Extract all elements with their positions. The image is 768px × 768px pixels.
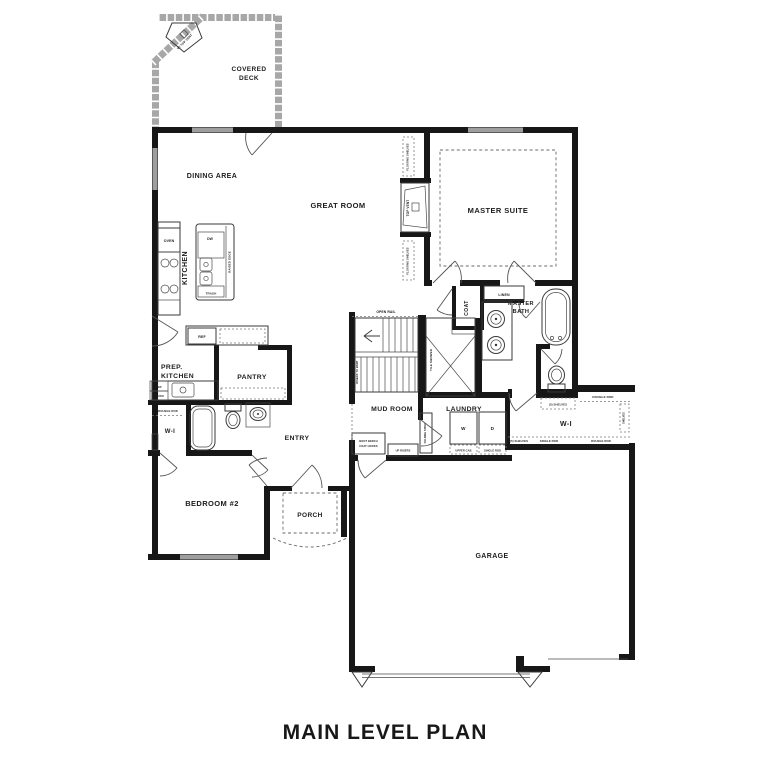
prep-kitchen-label-2: KITCHEN	[161, 373, 194, 380]
upper-cab-label: UPPER CAB	[455, 449, 471, 453]
front-door	[291, 465, 322, 488]
entry-label: ENTRY	[285, 435, 310, 442]
covered-deck-label-2: DECK	[239, 75, 259, 82]
bedroom2-closet-door	[160, 453, 177, 476]
tile-shower-label: TILE SHOWER	[429, 348, 433, 371]
prep-ref-label: REF	[156, 385, 162, 389]
garage-label: GARAGE	[475, 553, 508, 560]
kitchen-ref-label: REF	[198, 335, 206, 339]
micro-label: MICRO	[154, 394, 165, 398]
floor-plan-drawing: W/ TOP VENT COVERED DECK	[0, 0, 768, 768]
floating-shelves-upper-label: FLOATING SHELVES	[406, 143, 410, 170]
stair-direction-arrow	[364, 330, 380, 342]
doors	[152, 133, 352, 488]
wi-double-rod-top-label: DOUBLE ROD	[592, 395, 614, 399]
covered-deck-label-1: COVERED	[232, 66, 267, 73]
water-closet	[541, 349, 565, 392]
bedroom2-door	[249, 458, 267, 486]
master-suite-features	[433, 150, 556, 283]
freestanding-tub	[542, 289, 570, 345]
folding-table-label: FOLDING TABLE	[424, 422, 427, 443]
up-risers-label: UP RISERS	[396, 449, 411, 453]
great-room-label: GREAT ROOM	[310, 201, 365, 210]
top-vent-label: TOP VENT	[406, 200, 410, 217]
dining-area-label: DINING AREA	[187, 173, 237, 180]
wi-five-shelves-label: (5) SHELVES	[510, 439, 528, 443]
master-door-left	[433, 261, 461, 283]
bed-wi-double-rod-label: DOUBLE ROD	[158, 409, 178, 413]
floor-plan-page: W/ TOP VENT COVERED DECK	[0, 0, 768, 768]
tile-shower: SHELF TILE SHOWER	[426, 318, 475, 396]
master-bath-fixtures: SHELF TILE SHOWER	[426, 289, 570, 396]
dishwasher-label: DW	[207, 237, 214, 241]
washer-label: W	[461, 426, 466, 431]
covered-deck: W/ TOP VENT COVERED DECK	[153, 14, 282, 127]
open-rail-label: OPEN RAIL	[376, 310, 395, 314]
kitchen-fixtures: OVEN RAISED EDGE DW TRASH REF	[158, 222, 268, 345]
wi-double-rod-bottom-label: DOUBLE ROD	[591, 439, 611, 443]
bedroom2-closet-label: W-I	[165, 429, 175, 435]
mud-room-fixtures: BOOT BENCH COAT HOOKS UP RISERS	[352, 433, 418, 478]
dryer-label: D	[491, 426, 495, 431]
oven-label: OVEN	[164, 239, 175, 243]
pantry-shelves	[221, 388, 285, 399]
kitchen-label: KITCHEN	[182, 251, 189, 285]
boot-bench-label-2: COAT HOOKS	[359, 444, 378, 448]
mud-room-label: MUD ROOM	[371, 406, 413, 413]
master-closet-features: DOUBLE ROD (5) SHELVES SHELVES (5) SHELV…	[508, 393, 630, 443]
master-suite-label: MASTER SUITE	[468, 206, 529, 215]
main-bath-fixtures	[190, 403, 270, 450]
walls	[148, 127, 635, 672]
raised-edge-label: RAISED EDGE	[228, 251, 232, 273]
coat-closet-label: COAT	[464, 300, 470, 315]
pantry-label: PANTRY	[237, 374, 267, 381]
boot-bench-label-1: BOOT BENCH	[359, 439, 377, 443]
laundry-fixtures: FOLDING TABLE W D UPPER CAB SINGLE ROD	[420, 412, 506, 454]
wc-shelves-label: (5) SHELVES	[549, 403, 567, 407]
porch-label: PORCH	[297, 512, 322, 519]
prep-kitchen-fixtures: REF MICRO	[150, 381, 285, 400]
master-closet-label: W-I	[560, 421, 572, 428]
garage-features	[352, 659, 628, 687]
room-labels: DINING AREA GREAT ROOM KITCHEN PREP. KIT…	[161, 173, 572, 560]
wi-single-rod-label: SINGLE ROD	[540, 439, 558, 443]
stair-treads	[361, 318, 415, 392]
laundry-single-rod-label: SINGLE ROD	[484, 449, 501, 453]
stairs: OPEN RAIL RISERS TO BSMT	[352, 310, 418, 392]
plan-title: MAIN LEVEL PLAN	[283, 721, 488, 744]
shower-shelf-label: SHELF	[458, 326, 468, 330]
stair-risers-label: RISERS TO BSMT	[355, 360, 359, 384]
deck-door	[246, 133, 272, 155]
trash-label: TRASH	[206, 292, 217, 296]
bedroom2-label: BEDROOM #2	[185, 499, 239, 508]
wi-side-shelves-label: SHELVES	[623, 412, 626, 424]
garage-entry-door	[358, 460, 386, 478]
prep-kitchen-label-1: PREP.	[161, 364, 183, 371]
floating-shelves-lower-label: FLOATING SHELVES	[406, 247, 410, 274]
linen-label: LINEN	[498, 293, 510, 297]
porch-features	[273, 493, 347, 547]
master-door-right	[508, 261, 536, 283]
kitchen-island: RAISED EDGE DW TRASH	[196, 224, 234, 300]
